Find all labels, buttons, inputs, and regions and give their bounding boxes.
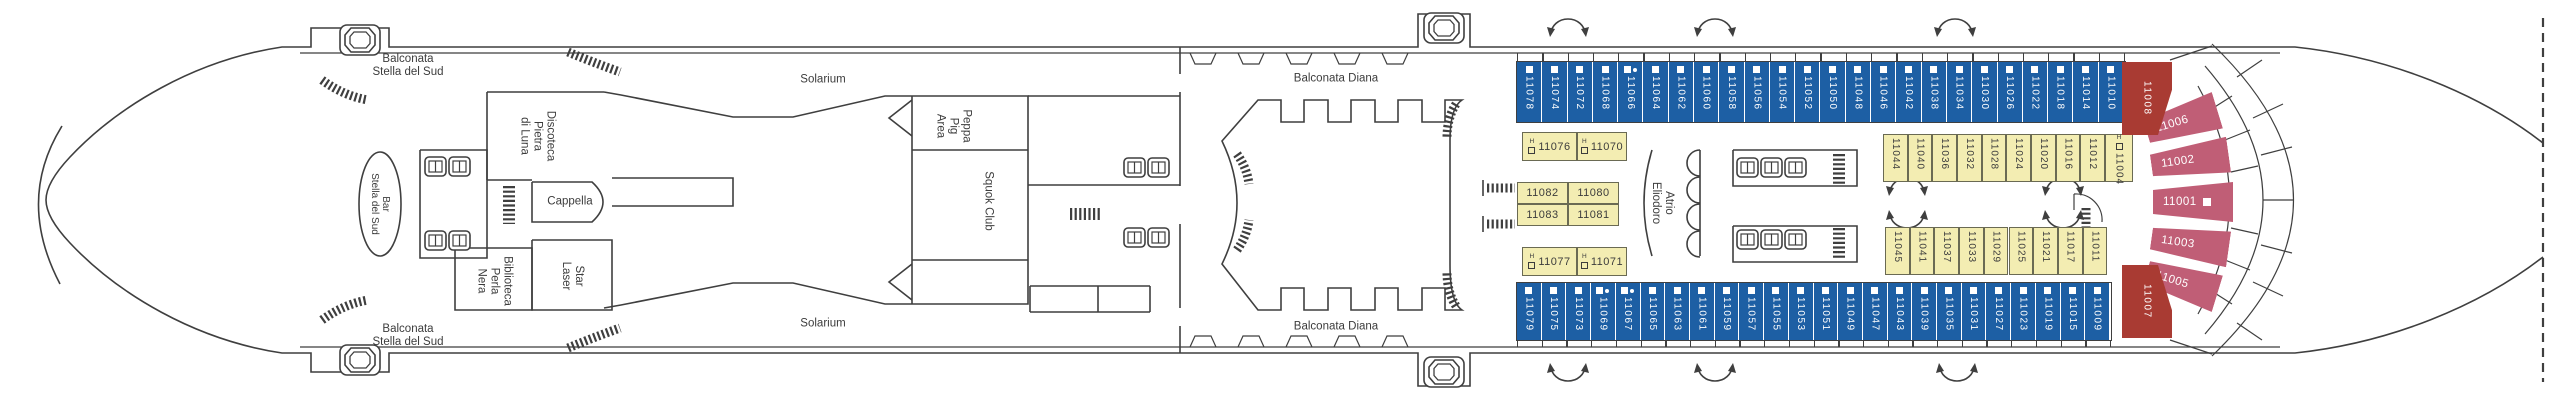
cabin-number: 11067 [1622, 297, 1633, 332]
cabin-marker [1829, 66, 1836, 73]
cabin-marker [1854, 66, 1861, 73]
balconata-stella-label-bottom: Balconata Stella del Sud [373, 323, 444, 349]
cabin-number: 11068 [1600, 76, 1611, 111]
balcony-divider [1912, 340, 1913, 347]
cabin-marker [1526, 66, 1533, 73]
cabin-number: 11022 [2029, 76, 2040, 111]
cabin-11010: 11010 [2099, 62, 2124, 122]
cabin-11060: 11060 [1694, 62, 1719, 122]
cabin-11025: 11025 [2009, 227, 2034, 275]
cabin-11073: 11073 [1566, 283, 1591, 340]
cabin-11001: 11001 [2153, 182, 2233, 222]
cabin-11027: 11027 [1986, 283, 2011, 340]
cabin-number: 11055 [1770, 297, 1781, 332]
balcony-divider [1814, 340, 1815, 347]
cabin-number: 11077 [1538, 256, 1570, 268]
cabin-marker [1677, 66, 1684, 73]
cabin-marker [2082, 66, 2089, 73]
cabin-11052: 11052 [1795, 62, 1820, 122]
cabin-number: 11041 [1917, 231, 1928, 263]
cabin-number: 11045 [1892, 231, 1903, 263]
balcony-divider [1542, 340, 1543, 347]
cabin-marker [1698, 287, 1705, 294]
balcony-marker-icon [2006, 66, 2013, 73]
accessible-glyph: H [1582, 139, 1587, 146]
balcony-marker-icon [1822, 287, 1829, 294]
accessible-glyph: H [2117, 135, 2122, 142]
balcony-divider [2036, 340, 2037, 347]
cabin-11051: 11051 [1814, 283, 1839, 340]
cabin-number: 11010 [2105, 76, 2116, 111]
cabin-11037: 11037 [1934, 227, 1959, 275]
cabin-number: 11079 [1523, 297, 1534, 332]
balcony-marker-icon [1550, 287, 1557, 294]
balcony-divider [1593, 53, 1594, 62]
cabin-11074: 11074 [1542, 62, 1567, 122]
cabin-number: 11078 [1524, 76, 1535, 111]
cabin-marker [2031, 66, 2038, 73]
cabin-number: 11063 [1672, 297, 1683, 332]
accessible-cabin-icon: H [1581, 139, 1588, 154]
balcony-divider [1871, 53, 1872, 62]
cabin-number: 11014 [2080, 76, 2091, 111]
cabin-number: 11047 [1869, 297, 1880, 332]
cabin-11053: 11053 [1789, 283, 1814, 340]
cabin-11032: 11032 [1957, 134, 1982, 182]
cabin-11024: 11024 [2006, 134, 2031, 182]
cabin-marker [1674, 287, 1681, 294]
cabin-marker [1930, 66, 1937, 73]
cabin-number: 11031 [1968, 297, 1979, 332]
cabin-number: 11056 [1751, 76, 1762, 111]
cabin-marker [1652, 66, 1659, 73]
cabin-11045: 11045 [1885, 227, 1910, 275]
cabin-number: 11018 [2055, 76, 2066, 111]
berth-dot-icon [1605, 289, 1609, 293]
balcony-marker-icon [1526, 66, 1533, 73]
balcony-divider [2011, 340, 2012, 347]
balcony-marker-icon [1772, 287, 1779, 294]
cabin-11016: 11016 [2056, 134, 2081, 182]
cabin-11015: 11015 [2061, 283, 2086, 340]
balcony-marker-icon [2069, 287, 2076, 294]
cabin-number: 11072 [1574, 76, 1585, 111]
balcony-divider [1863, 340, 1864, 347]
cabin-marker [1703, 66, 1710, 73]
cabin-11064: 11064 [1643, 62, 1668, 122]
balcony-marker-icon [1698, 287, 1705, 294]
balcony-divider [2061, 340, 2062, 347]
cabin-number: 11054 [1777, 76, 1788, 111]
cabin-11012: 11012 [2080, 134, 2105, 182]
cabin-marker [1956, 66, 1963, 73]
balcony-marker-icon [2031, 66, 2038, 73]
cabin-11036: 11036 [1932, 134, 1957, 182]
cabin-11022: 11022 [2023, 62, 2048, 122]
accessible-glyph: H [1530, 139, 1535, 146]
cabin-11020: 11020 [2031, 134, 2056, 182]
balconata-diana-label-top: Balconata Diana [1294, 73, 1378, 86]
cabin-11081: 11081 [1568, 204, 1619, 226]
balcony-marker-icon [2044, 287, 2051, 294]
balcony-divider [1694, 53, 1695, 62]
cabin-11023: 11023 [2011, 283, 2036, 340]
cabin-number: 11020 [2038, 138, 2049, 170]
balcony-marker-icon [1829, 66, 1836, 73]
star-laser-label: Star Laser [559, 262, 585, 291]
balcony-divider [1770, 53, 1771, 62]
balcony-marker-icon [1621, 287, 1628, 294]
cabin-marker [1995, 287, 2002, 294]
cabin-number: 11008 [2142, 81, 2153, 116]
cabin-marker [1945, 287, 1952, 294]
balcony-divider [1517, 340, 1518, 347]
balcony-marker-icon [1649, 287, 1656, 294]
cabin-marker [1880, 66, 1887, 73]
cabin-marker [1921, 287, 1928, 294]
cabin-number: 11035 [1943, 297, 1954, 332]
cabin-number: 11062 [1675, 76, 1686, 111]
cabin-number: 11052 [1802, 76, 1813, 111]
squok-club-label: Squok Club [982, 171, 995, 230]
cabin-11068: 11068 [1593, 62, 1618, 122]
berth-dot-icon [1633, 68, 1637, 72]
cabin-marker [1871, 287, 1878, 294]
cabin-marker [2069, 287, 2076, 294]
discoteca-label: Discoteca Pietra di Luna [518, 111, 557, 162]
deck-plan: Balconata Stella del Sud Balconata Stell… [0, 0, 2572, 400]
cabin-11056: 11056 [1745, 62, 1770, 122]
cabin-number: 11015 [2067, 297, 2078, 332]
cabin-11067: 11067 [1616, 283, 1641, 340]
balcony-divider [1618, 53, 1619, 62]
cabin-marker [1847, 287, 1854, 294]
accessible-square-icon [1528, 262, 1535, 269]
balcony-divider [1591, 340, 1592, 347]
cabin-number: 11081 [1577, 209, 1609, 221]
cabin-11065: 11065 [1641, 283, 1666, 340]
balcony-divider [1896, 53, 1897, 62]
cabin-number: 11057 [1746, 297, 1757, 332]
cabin-11011: 11011 [2083, 227, 2108, 275]
balcony-divider [1715, 340, 1716, 347]
cabin-11049: 11049 [1838, 283, 1863, 340]
cabin-number: 11051 [1820, 297, 1831, 332]
cabin-11030: 11030 [1972, 62, 1997, 122]
cabin-11040: 11040 [1908, 134, 1933, 182]
cabin-marker [2044, 287, 2051, 294]
cabin-number: 11050 [1827, 76, 1838, 111]
cabin-11043: 11043 [1888, 283, 1913, 340]
cabin-number: 11024 [2013, 138, 2024, 170]
cabin-11026: 11026 [1998, 62, 2023, 122]
balcony-divider [2110, 340, 2111, 347]
cabin-number: 11053 [1795, 297, 1806, 332]
cabin-number: 11083 [1526, 209, 1558, 221]
cabin-marker [2057, 66, 2064, 73]
cabin-marker [1905, 66, 1912, 73]
cabin-number: 11009 [2092, 297, 2103, 332]
cabin-11061: 11061 [1690, 283, 1715, 340]
cabin-marker [1896, 287, 1903, 294]
cabin-marker [1723, 287, 1730, 294]
cabin-11069: 11069 [1591, 283, 1616, 340]
cabin-11072: 11072 [1568, 62, 1593, 122]
accessible-square-icon [2116, 143, 2123, 150]
cabin-11018: 11018 [2048, 62, 2073, 122]
cabin-number: 11048 [1852, 76, 1863, 111]
balcony-divider [1566, 340, 1567, 347]
cabin-11070: H11070 [1577, 132, 1627, 161]
accessible-square-icon [1581, 147, 1588, 154]
accessible-square-icon [1528, 147, 1535, 154]
atrio-eliodoro-label: Atrio Eliodoro [1649, 182, 1675, 224]
cabin-11080: 11080 [1568, 182, 1619, 204]
balcony-divider [1986, 340, 1987, 347]
cabin-marker [1822, 287, 1829, 294]
solarium-label-top: Solarium [800, 74, 845, 87]
balcony-marker-icon [1896, 287, 1903, 294]
cabin-number: 11033 [1966, 231, 1977, 263]
cabin-marker [1981, 66, 1988, 73]
balcony-marker-icon [1576, 66, 1583, 73]
balcony-marker-icon [1723, 287, 1730, 294]
balcony-marker-icon [1602, 66, 1609, 73]
balcony-divider [1739, 340, 1740, 347]
balcony-marker-icon [1779, 66, 1786, 73]
balcony-divider [1616, 340, 1617, 347]
balcony-marker-icon [1995, 287, 2002, 294]
balcony-marker-icon [1703, 66, 1710, 73]
balcony-divider [1947, 53, 1948, 62]
cabin-number: 11036 [1939, 138, 1950, 170]
balcony-divider [2048, 53, 2049, 62]
cabin-marker [2107, 66, 2114, 73]
cabin-number: 11002 [2160, 153, 2195, 170]
cabin-11075: 11075 [1542, 283, 1567, 340]
accessible-cabin-icon: H [1528, 254, 1535, 269]
cabin-number: 11073 [1573, 297, 1584, 332]
cabin-11057: 11057 [1739, 283, 1764, 340]
cabin-marker [2094, 287, 2101, 294]
cabin-11039: 11039 [1912, 283, 1937, 340]
cabin-number: 11016 [2063, 138, 2074, 170]
cabin-number: 11028 [1989, 138, 2000, 170]
balcony-divider [2124, 53, 2125, 62]
cabin-11077: H11077 [1522, 247, 1577, 276]
balcony-marker-icon [1596, 287, 1603, 294]
cabin-11050: 11050 [1820, 62, 1845, 122]
cabin-11021: 11021 [2033, 227, 2058, 275]
cabin-number: 11070 [1591, 141, 1623, 153]
cabin-number: 11049 [1845, 297, 1856, 332]
cabin-11076: H11076 [1522, 132, 1577, 161]
balcony-marker-icon [2020, 287, 2027, 294]
balcony-divider [1795, 53, 1796, 62]
cabin-11055: 11055 [1764, 283, 1789, 340]
cabin-11054: 11054 [1770, 62, 1795, 122]
accessible-glyph: H [1582, 254, 1587, 261]
cabin-11048: 11048 [1846, 62, 1871, 122]
balcony-marker-icon [1847, 287, 1854, 294]
cabin-marker [1602, 66, 1609, 73]
cabin-number: 11065 [1647, 297, 1658, 332]
cabin-number: 11059 [1721, 297, 1732, 332]
cabin-number: 11017 [2065, 231, 2076, 263]
balcony-divider [2073, 53, 2074, 62]
cabin-marker [2006, 66, 2013, 73]
balcony-divider [1998, 53, 1999, 62]
balconata-stella-label-top: Balconata Stella del Sud [373, 53, 444, 79]
cabin-11003: 11003 [2149, 221, 2231, 268]
cabin-marker [1551, 66, 1558, 73]
cabin-11004: H11004 [2105, 134, 2133, 182]
cabin-number: 11042 [1903, 76, 1914, 111]
cabin-11059: 11059 [1715, 283, 1740, 340]
cabin-11017: 11017 [2058, 227, 2083, 275]
cabin-11041: 11041 [1910, 227, 1935, 275]
cabin-marker [1550, 287, 1557, 294]
balcony-divider [1764, 340, 1765, 347]
balcony-marker-icon [1871, 287, 1878, 294]
cabin-number: 11058 [1726, 76, 1737, 111]
cabin-number: 11023 [2018, 297, 2029, 332]
cabin-number: 11069 [1597, 297, 1608, 332]
cabin-marker [1728, 66, 1735, 73]
cabin-marker [1596, 287, 1609, 294]
cabin-11083: 11083 [1517, 204, 1568, 226]
cabin-marker [1970, 287, 1977, 294]
cabin-11071: H11071 [1577, 247, 1627, 276]
cabin-marker [1797, 287, 1804, 294]
cabin-marker [1575, 287, 1582, 294]
biblioteca-label: Biblioteca Perla Nera [475, 256, 514, 306]
cabin-number: 11039 [1919, 297, 1930, 332]
balcony-divider [1690, 340, 1691, 347]
accessible-glyph: H [1530, 254, 1535, 261]
cabin-11042: 11042 [1896, 62, 1921, 122]
cabin-number: 11076 [1538, 141, 1570, 153]
cappella-label: Cappella [547, 196, 592, 209]
balcony-divider [1922, 53, 1923, 62]
balcony-marker-icon [1677, 66, 1684, 73]
cabin-number: 11066 [1625, 76, 1636, 111]
balcony-marker-icon [1728, 66, 1735, 73]
balcony-marker-icon [1981, 66, 1988, 73]
balcony-marker-icon [1956, 66, 1963, 73]
suite-marker-icon [2203, 198, 2211, 206]
balcony-marker-icon [2082, 66, 2089, 73]
balcony-divider [1846, 53, 1847, 62]
balcony-divider [1719, 53, 1720, 62]
cabin-11047: 11047 [1863, 283, 1888, 340]
cabin-11029: 11029 [1984, 227, 2009, 275]
cabin-number: 11007 [2142, 284, 2153, 319]
cabin-number: 11071 [1591, 256, 1623, 268]
balcony-divider [1962, 340, 1963, 347]
balcony-divider [1641, 340, 1642, 347]
cabin-11031: 11031 [1962, 283, 1987, 340]
cabin-number: 11075 [1548, 297, 1559, 332]
cabin-marker [1772, 287, 1779, 294]
balcony-divider [1669, 53, 1670, 62]
cabin-number: 11012 [2087, 138, 2098, 170]
cabin-number: 11044 [1890, 138, 1901, 170]
cabin-number: 11038 [1928, 76, 1939, 111]
cabin-number: 11040 [1914, 138, 1925, 170]
balcony-marker-icon [1674, 287, 1681, 294]
balcony-divider [1838, 340, 1839, 347]
balcony-marker-icon [1797, 287, 1804, 294]
cabin-number: 11082 [1526, 187, 1558, 199]
balcony-marker-icon [1652, 66, 1659, 73]
balcony-marker-icon [1525, 287, 1532, 294]
balcony-marker-icon [1945, 287, 1952, 294]
cabin-11058: 11058 [1719, 62, 1744, 122]
cabin-marker [1525, 287, 1532, 294]
balcony-marker-icon [1748, 287, 1755, 294]
balcony-divider [1937, 340, 1938, 347]
cabin-11014: 11014 [2073, 62, 2098, 122]
balcony-marker-icon [2094, 287, 2101, 294]
cabin-11063: 11063 [1665, 283, 1690, 340]
cabin-11038: 11038 [1922, 62, 1947, 122]
bar-stella-label: Bar Stella del Sud [369, 173, 391, 235]
cabin-number: 11030 [1979, 76, 1990, 111]
balcony-marker-icon [1753, 66, 1760, 73]
cabin-number: 11025 [2015, 231, 2026, 263]
balcony-marker-icon [1804, 66, 1811, 73]
balcony-marker-icon [2057, 66, 2064, 73]
balcony-marker-icon [1551, 66, 1558, 73]
solarium-label-bottom: Solarium [800, 318, 845, 331]
cabin-number: 11029 [1991, 231, 2002, 263]
cabin-marker [1779, 66, 1786, 73]
cabin-11035: 11035 [1937, 283, 1962, 340]
balcony-divider [2099, 53, 2100, 62]
accessible-square-icon [1581, 262, 1588, 269]
cabin-11033: 11033 [1959, 227, 1984, 275]
balcony-divider [1888, 340, 1889, 347]
cabin-marker [1753, 66, 1760, 73]
balcony-marker-icon [1624, 66, 1631, 73]
cabin-11028: 11028 [1982, 134, 2007, 182]
cabin-number: 11026 [2004, 76, 2015, 111]
cabin-marker [2020, 287, 2027, 294]
cabin-11046: 11046 [1871, 62, 1896, 122]
cabin-11009: 11009 [2085, 283, 2110, 340]
balcony-divider [1643, 53, 1644, 62]
cabin-number: 11019 [2042, 297, 2053, 332]
balcony-divider [1665, 340, 1666, 347]
cabin-number: 11021 [2040, 231, 2051, 263]
cabin-number: 11060 [1701, 76, 1712, 111]
balcony-marker-icon [1930, 66, 1937, 73]
cabin-11034: 11034 [1947, 62, 1972, 122]
balcony-marker-icon [1575, 287, 1582, 294]
cabin-marker [1649, 287, 1656, 294]
cabin-11079: 11079 [1517, 283, 1542, 340]
peppa-pig-area-label: Peppa Pig Area [934, 109, 973, 142]
cabin-number: 11061 [1696, 297, 1707, 332]
balcony-divider [1517, 53, 1518, 62]
cabin-number: 11046 [1878, 76, 1889, 111]
cabin-11002: 11002 [2149, 137, 2231, 184]
balcony-divider [2085, 340, 2086, 347]
cabin-number: 11032 [1964, 138, 1975, 170]
balcony-divider [1745, 53, 1746, 62]
cabin-number: 11074 [1549, 76, 1560, 111]
